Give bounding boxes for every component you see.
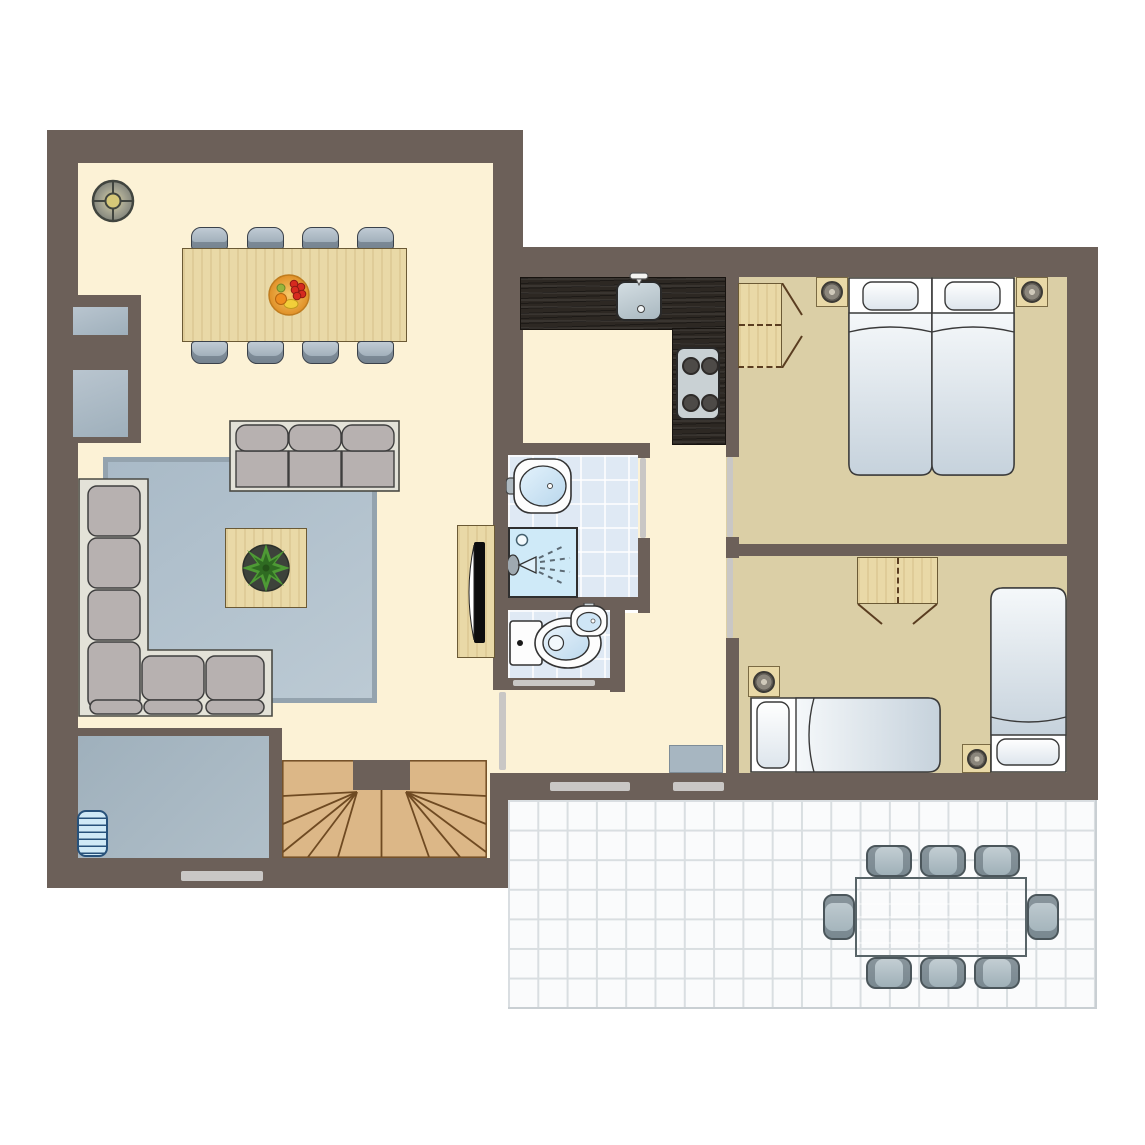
nightstand	[748, 666, 780, 697]
washbasin	[506, 458, 572, 514]
outdoor-chair	[974, 957, 1020, 989]
dining-chair	[357, 227, 394, 250]
dining-chair	[191, 341, 228, 364]
table-lamp	[753, 671, 775, 693]
single-bed	[750, 697, 941, 773]
outdoor-chair	[974, 845, 1020, 877]
wall	[47, 130, 78, 888]
table-lamp	[821, 281, 843, 303]
wall	[739, 544, 1067, 556]
wall	[493, 130, 523, 455]
twin-beds	[848, 277, 1015, 477]
winder-stairs	[282, 760, 487, 858]
fruit-bowl	[268, 274, 310, 316]
wall	[638, 538, 650, 613]
wall	[726, 537, 739, 558]
terrace-door-marker	[550, 782, 630, 791]
kitchen-faucet	[626, 272, 652, 286]
wardrobe-door-swing	[857, 604, 938, 628]
window-marker	[181, 871, 263, 881]
wall	[490, 773, 508, 888]
bedroom2-door-marker	[727, 558, 733, 638]
outdoor-table	[855, 877, 1027, 957]
stair-void	[353, 760, 410, 790]
radiator	[77, 810, 108, 857]
dining-chair	[302, 341, 339, 364]
dining-chair	[191, 227, 228, 250]
bathroom-door-marker	[640, 458, 646, 538]
wall	[493, 247, 1098, 277]
single-bed	[990, 587, 1068, 773]
outdoor-chair	[1027, 894, 1059, 940]
dining-chair	[247, 227, 284, 250]
hallway-floor	[650, 455, 726, 773]
nightstand	[962, 744, 991, 773]
bedroom1-door-marker	[727, 457, 733, 537]
stove	[676, 347, 720, 420]
outdoor-chair	[920, 845, 966, 877]
kitchen-sink	[616, 281, 662, 321]
wall	[1067, 247, 1098, 800]
fireplace-flue	[73, 307, 128, 335]
fireplace-hearth	[73, 370, 128, 437]
wardrobe	[738, 283, 782, 368]
plant	[238, 540, 294, 596]
outdoor-chair	[920, 957, 966, 989]
wardrobe	[857, 557, 938, 604]
terrace-door-marker	[673, 782, 724, 791]
wc-door-marker	[513, 680, 595, 686]
hall-opening-marker	[499, 692, 506, 770]
wall	[47, 130, 523, 163]
nightstand	[1016, 277, 1048, 307]
wall	[493, 443, 650, 455]
wall	[726, 638, 739, 773]
ceiling-light	[91, 179, 135, 223]
tv	[464, 540, 490, 645]
outdoor-chair	[866, 957, 912, 989]
dining-chair	[357, 341, 394, 364]
nightstand	[816, 277, 848, 307]
floor-plan	[0, 0, 1145, 1145]
outdoor-chair	[866, 845, 912, 877]
wardrobe-door-swing	[782, 283, 804, 368]
wall	[70, 728, 281, 736]
dining-chair	[247, 341, 284, 364]
wall	[269, 728, 282, 864]
table-lamp	[967, 749, 987, 769]
table-lamp	[1021, 281, 1043, 303]
hallway-floor	[508, 690, 650, 773]
wall	[638, 443, 650, 458]
outdoor-chair	[823, 894, 855, 940]
small-washbasin	[570, 603, 608, 637]
doormat	[669, 745, 723, 773]
dining-chair	[302, 227, 339, 250]
shower-head-icon	[508, 527, 578, 598]
